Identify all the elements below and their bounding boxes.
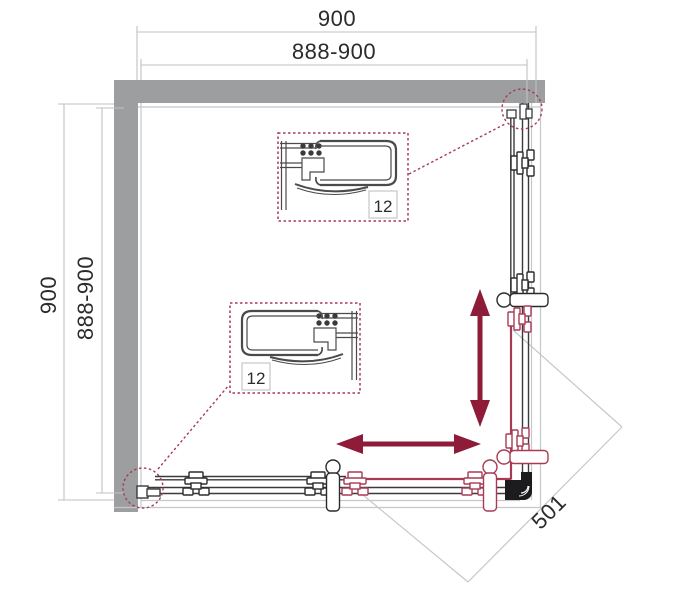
corner-bracket-icon: [505, 472, 532, 500]
panel-top-bracket-icon: [507, 110, 516, 118]
vertical-double-arrow-icon: [470, 289, 490, 427]
bottom-door-assembly: [137, 460, 531, 511]
horizontal-double-arrow-icon: [336, 434, 481, 454]
roller-icon-accent: [342, 472, 368, 495]
handle-knob-icon: [326, 460, 340, 511]
roller-icon: [183, 472, 209, 495]
callout-connector-top: [409, 124, 505, 174]
dimension-left-outer: 900: [36, 276, 61, 314]
left-wall: [114, 80, 138, 512]
dimension-left-inner: 888-900: [73, 256, 98, 340]
technical-drawing-page: 900 888-900 900 888-900 501: [0, 0, 675, 600]
detail-box-bottom: 12: [230, 303, 360, 393]
wall-profile-end-icon: [520, 104, 532, 119]
detail-label-bottom: 12: [247, 369, 266, 388]
diagonal-extension-lines: [357, 330, 622, 582]
handle-knob-icon-accent: [497, 450, 548, 464]
dimension-top-inner: 888-900: [292, 39, 376, 64]
callout-connector-bottom: [158, 385, 229, 469]
handle-knob-icon: [497, 293, 548, 307]
detail-box-top: 12: [278, 133, 408, 221]
dimension-top-outer: 900: [318, 6, 356, 31]
top-wall: [114, 80, 545, 103]
dimension-diagonal-entry: 501: [526, 489, 571, 534]
technical-drawing: 900 888-900 900 888-900 501: [0, 0, 675, 600]
detail-label-top: 12: [374, 197, 393, 216]
handle-knob-icon-accent: [483, 460, 497, 511]
